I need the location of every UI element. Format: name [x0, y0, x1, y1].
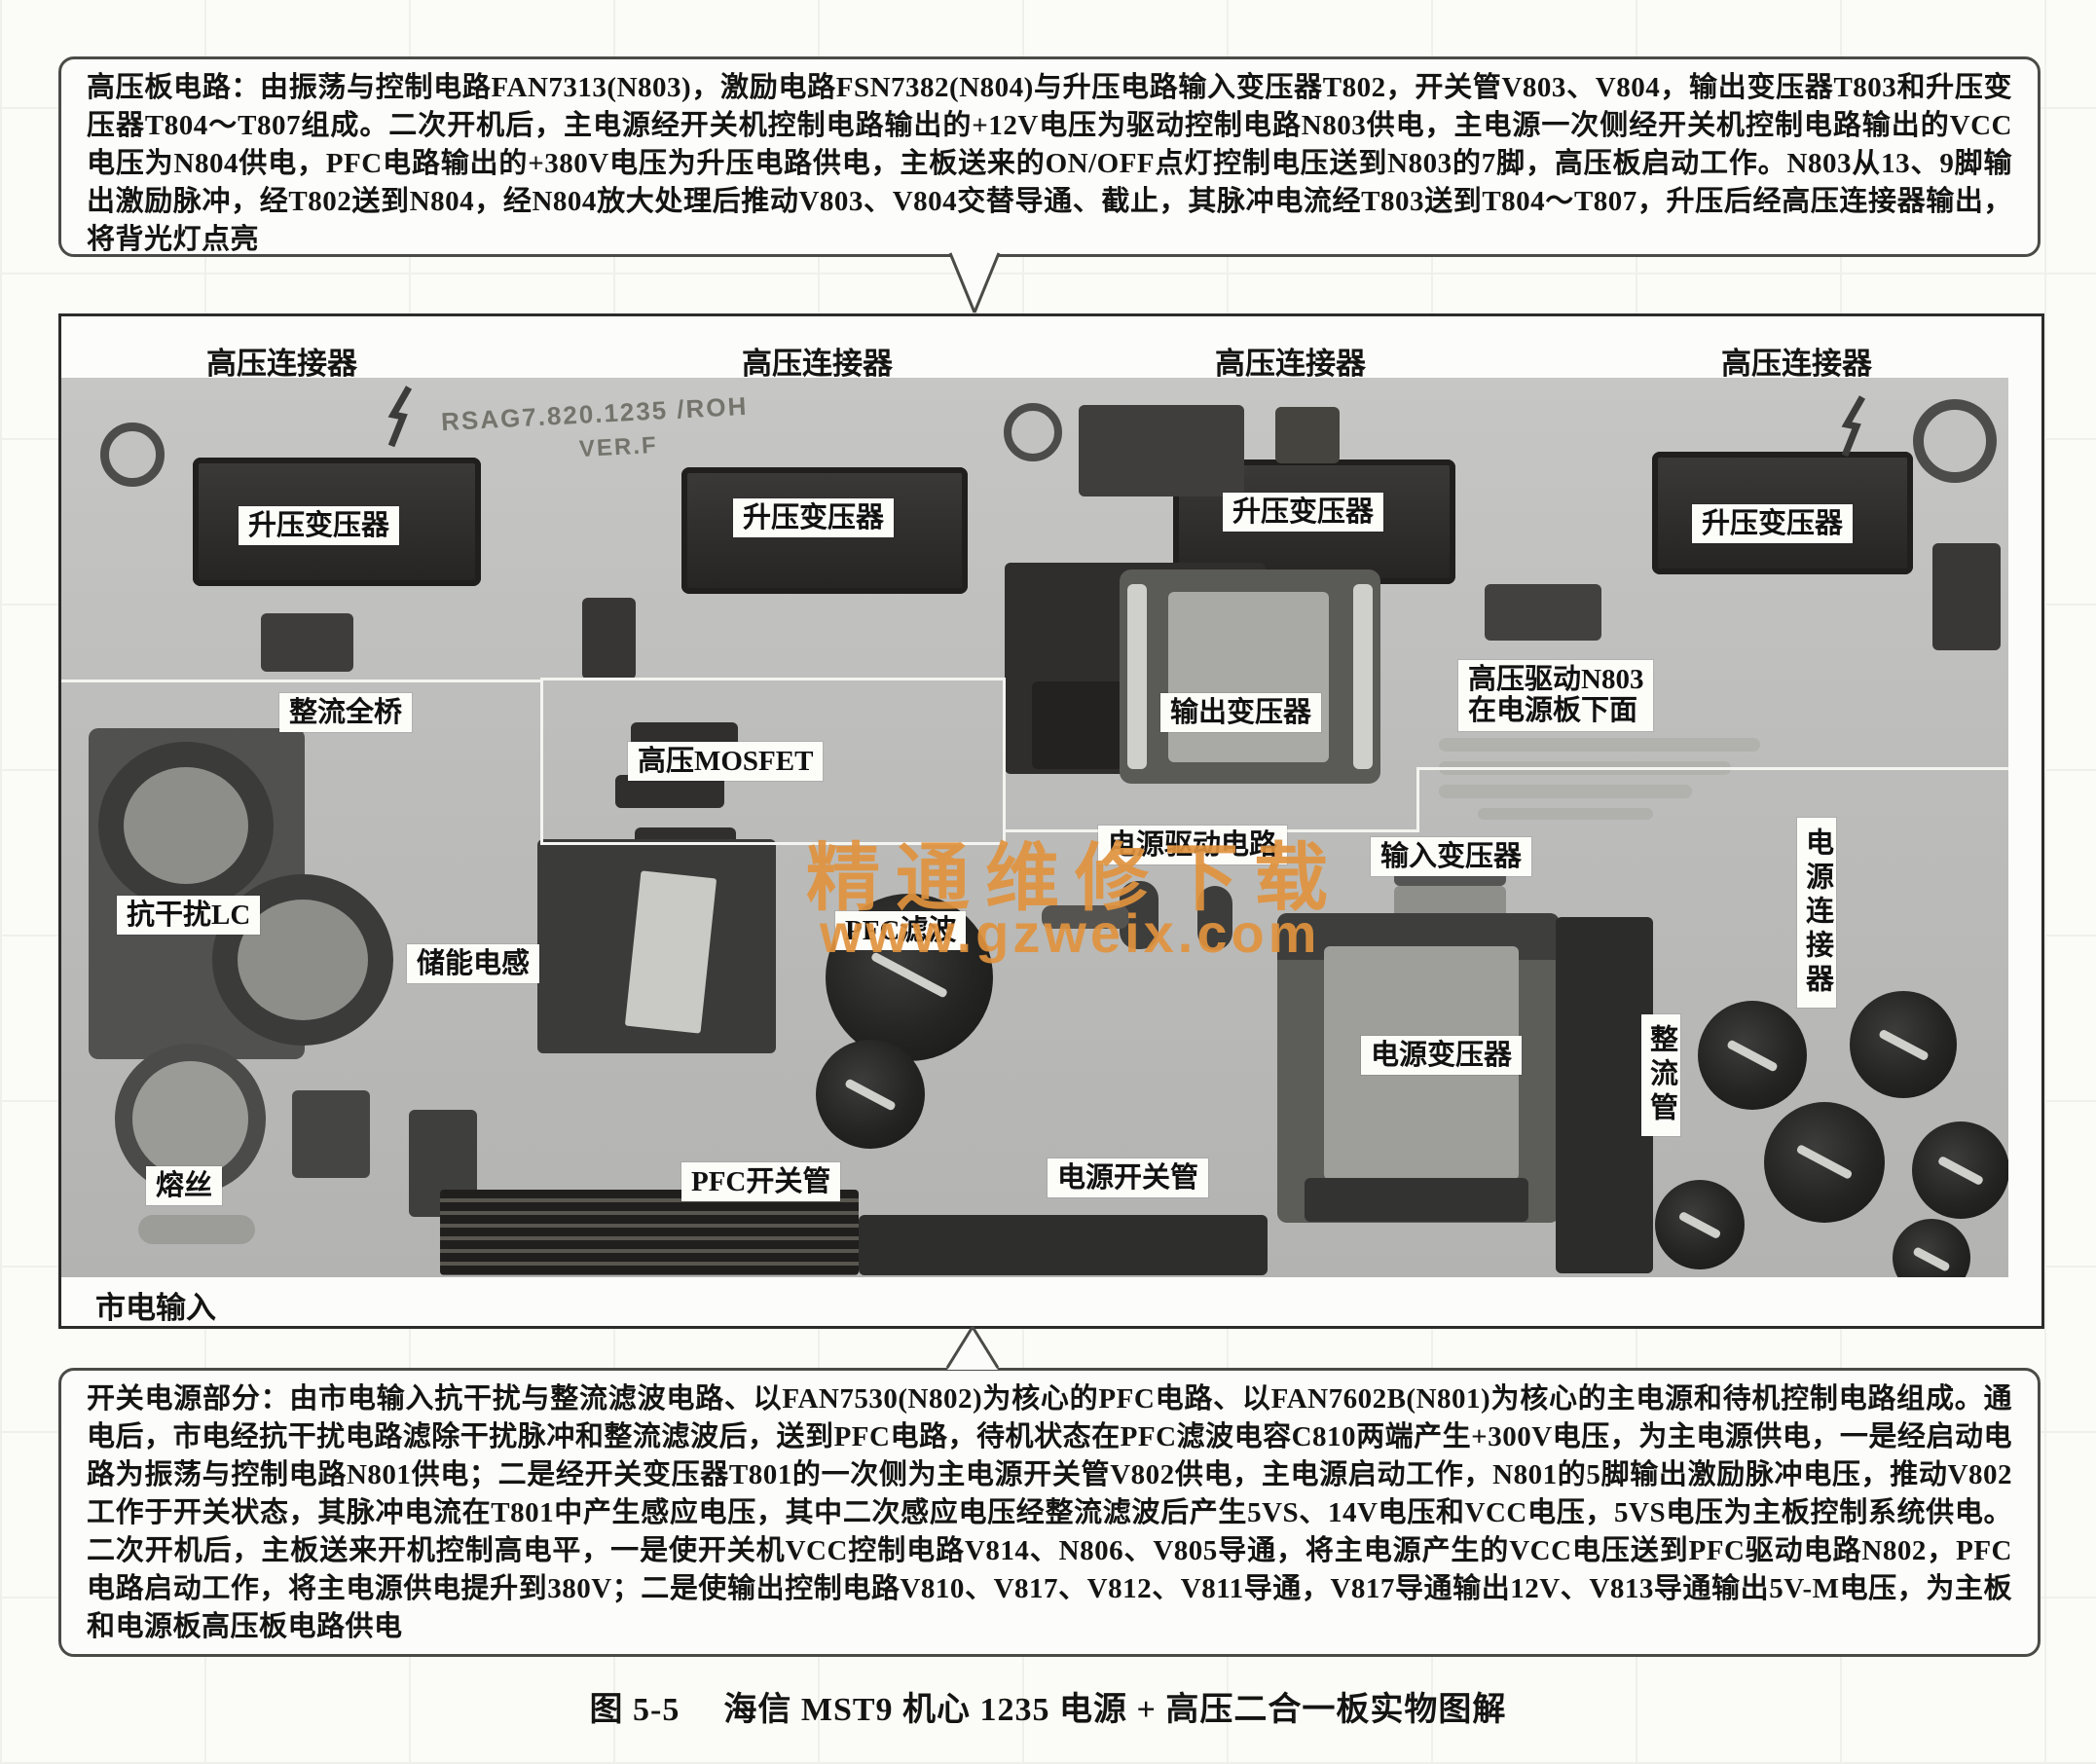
electrolytic-capacitor: [1655, 1180, 1745, 1269]
hv-connector-label-1: 高压连接器: [206, 339, 357, 383]
component: [1275, 407, 1340, 463]
board-photo: RSAG7.820.1235 /ROH VER.F: [61, 378, 2008, 1277]
smps-note-box: 开关电源部分：由市电输入抗干扰与整流滤波电路、以FAN7530(N802)为核心…: [58, 1368, 2041, 1657]
power-switch-label: 电源开关管: [1048, 1158, 1208, 1197]
boost-transformer-label-3: 升压变压器: [1223, 493, 1383, 532]
fuse-label: 熔丝: [146, 1166, 222, 1205]
power-switch-heatsink: [859, 1215, 1268, 1275]
mains-input-label: 市电输入: [95, 1283, 216, 1327]
hv-mosfet-label: 高压MOSFET: [628, 742, 823, 781]
hv-warning-bolt-icon: [387, 386, 417, 448]
pfc-switch-label: PFC开关管: [681, 1162, 840, 1201]
emi-lc-label: 抗干扰LC: [117, 896, 260, 935]
output-transformer-flange: [1353, 584, 1373, 769]
smps-note-text: 开关电源部分：由市电输入抗干扰与整流滤波电路、以FAN7530(N802)为核心…: [87, 1380, 2012, 1646]
power-transformer-label: 电源变压器: [1361, 1036, 1522, 1075]
screw-hole: [100, 423, 165, 487]
screw-hole: [1004, 403, 1062, 461]
board-silkscreen-version: VER.F: [578, 432, 658, 463]
power-transformer-base: [1305, 1178, 1528, 1222]
board-silkscreen-text: RSAG7.820.1235 /ROH: [440, 391, 749, 437]
boost-transformer-label-4: 升压变压器: [1692, 504, 1853, 543]
hv-connector-label-3: 高压连接器: [1215, 339, 1366, 383]
component: [1079, 405, 1244, 496]
output-transformer-flange: [1127, 584, 1147, 769]
output-transformer-tape: [1168, 592, 1329, 762]
component: [582, 598, 636, 680]
model-print-smudge: [1439, 738, 1760, 752]
hv-circuit-note-box: 高压板电路：由振荡与控制电路FAN7313(N803)，激励电路FSN7382(…: [58, 56, 2041, 257]
bridge-rectifier-label: 整流全桥: [279, 693, 412, 732]
hv-warning-bolt-icon: [1841, 395, 1870, 458]
rectifier-tubes-label: 整流管: [1641, 1014, 1680, 1136]
hv-driver-label-line2: 在电源板下面: [1468, 695, 1643, 726]
figure-caption: 图 5-5 海信 MST9 机心 1235 电源 + 高压二合一板实物图解: [0, 1682, 2096, 1730]
component-sticker: [625, 870, 717, 1033]
rectifier-heatsink: [1556, 917, 1653, 1273]
component: [1932, 543, 2001, 650]
hv-connector-label-2: 高压连接器: [742, 339, 893, 383]
watermark-url: www.gzweix.com: [820, 901, 1320, 965]
electrolytic-capacitor: [1764, 1102, 1885, 1223]
hv-connector-label-4: 高压连接器: [1721, 339, 1872, 383]
output-transformer-label: 输出变压器: [1160, 693, 1321, 732]
boost-transformer-label-2: 升压变压器: [733, 498, 894, 537]
pfc-filter-capacitor: [816, 1040, 925, 1149]
hv-driver-label: 高压驱动N803 在电源板下面: [1458, 660, 1653, 731]
electrolytic-capacitor: [1698, 1001, 1807, 1110]
component: [261, 613, 353, 672]
input-transformer-label: 输入变压器: [1371, 837, 1531, 876]
component: [1485, 584, 1601, 641]
hv-circuit-note-text: 高压板电路：由振荡与控制电路FAN7313(N803)，激励电路FSN7382(…: [87, 69, 2012, 259]
hv-driver-label-line1: 高压驱动N803: [1468, 664, 1643, 695]
model-print-smudge: [1478, 808, 1653, 820]
electrolytic-capacitor: [1850, 991, 1957, 1098]
section-divider-line: [1416, 767, 2008, 770]
callout-pointer-top: [925, 246, 1032, 319]
boost-transformer-label-1: 升压变压器: [239, 506, 399, 545]
figure-caption-title: 海信 MST9 机心 1235 电源 + 高压二合一板实物图解: [723, 1692, 1506, 1728]
fuse-cylinder: [138, 1215, 255, 1244]
storage-inductor-label: 储能电感: [407, 944, 539, 983]
toroid-inductor: [98, 742, 274, 909]
manual-page: 高压板电路：由振荡与控制电路FAN7313(N803)，激励电路FSN7382(…: [0, 0, 2096, 1764]
screw-hole: [1913, 399, 1997, 483]
section-divider-line: [1416, 769, 1419, 832]
callout-pointer-bottom: [920, 1319, 1027, 1376]
power-connector-label: 电源连接器: [1797, 818, 1836, 1008]
figure-caption-number: 图 5-5: [590, 1692, 680, 1728]
model-print-smudge: [1439, 785, 1692, 798]
pfc-switch-heatsink: [440, 1190, 859, 1275]
electrolytic-capacitor: [1912, 1121, 2008, 1219]
electrolytic-capacitor: [1893, 1219, 1970, 1277]
section-divider-line: [61, 680, 540, 682]
component: [292, 1090, 370, 1178]
